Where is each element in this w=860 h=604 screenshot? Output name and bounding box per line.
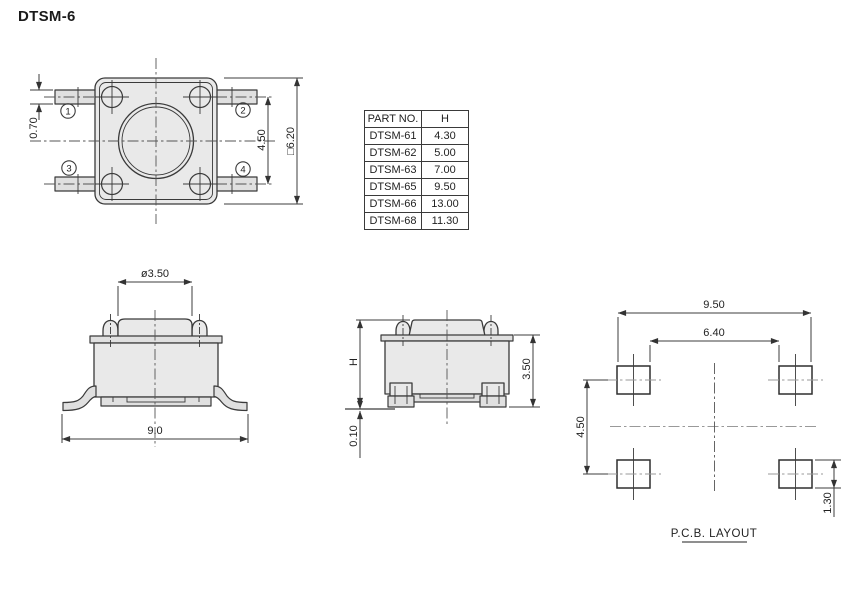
pin3-label: 3 bbox=[66, 163, 71, 174]
top-view-drawing: 1 2 3 4 0.70 4.50 bbox=[28, 58, 303, 224]
dim-0-10-label: 0.10 bbox=[348, 425, 360, 446]
foot-left bbox=[388, 383, 414, 407]
dim-body-height: 3.50 bbox=[509, 335, 540, 407]
pin2-label: 2 bbox=[240, 105, 245, 116]
foot-right bbox=[480, 383, 506, 407]
pin4-label: 4 bbox=[240, 164, 245, 175]
base-front bbox=[101, 397, 211, 406]
dim-standoff: 0.10 bbox=[348, 396, 360, 458]
dim-pin-pitch: 4.50 bbox=[256, 97, 268, 184]
dim-4-50-label: 4.50 bbox=[256, 129, 268, 150]
pin1-label: 1 bbox=[65, 106, 70, 117]
dim-3-50-dia-label: ø3.50 bbox=[141, 268, 169, 280]
cover-plate-front bbox=[90, 336, 222, 343]
side-view-drawing: H 0.10 3.50 bbox=[345, 310, 540, 458]
technical-drawing: 1 2 3 4 0.70 4.50 bbox=[0, 0, 860, 604]
datasheet-page: DTSM-6 PART NO. H DTSM-614.30 DTSM-625.0… bbox=[0, 0, 860, 604]
dim-pad-height: 1.30 bbox=[815, 460, 841, 517]
gullwing-left bbox=[63, 386, 96, 411]
dim-3-50-label: 3.50 bbox=[521, 358, 533, 379]
pcb-layout-drawing: 9.50 6.40 4.50 bbox=[575, 299, 841, 542]
dim-9-50-label: 9.50 bbox=[703, 299, 724, 311]
front-view-drawing: ø3.50 9.0 bbox=[62, 268, 248, 447]
dim-span-inner: 6.40 bbox=[650, 327, 779, 362]
pcb-layout-label: P.C.B. LAYOUT bbox=[671, 528, 758, 540]
dim-button-diameter: ø3.50 bbox=[118, 268, 192, 316]
gullwing-right bbox=[214, 386, 247, 411]
dim-0-70-label: 0.70 bbox=[28, 117, 40, 138]
switch-body-front bbox=[94, 343, 218, 397]
dim-1-30-label: 1.30 bbox=[822, 492, 834, 513]
dim-6-20-label: □6.20 bbox=[285, 127, 297, 155]
dim-row-pitch: 4.50 bbox=[575, 380, 608, 474]
dim-4-50-pcb-label: 4.50 bbox=[575, 416, 587, 437]
dim-terminal-width: 0.70 bbox=[28, 74, 53, 139]
dim-6-40-label: 6.40 bbox=[703, 327, 724, 339]
dim-h-label: H bbox=[348, 358, 360, 366]
dim-9-0-label: 9.0 bbox=[147, 425, 162, 437]
